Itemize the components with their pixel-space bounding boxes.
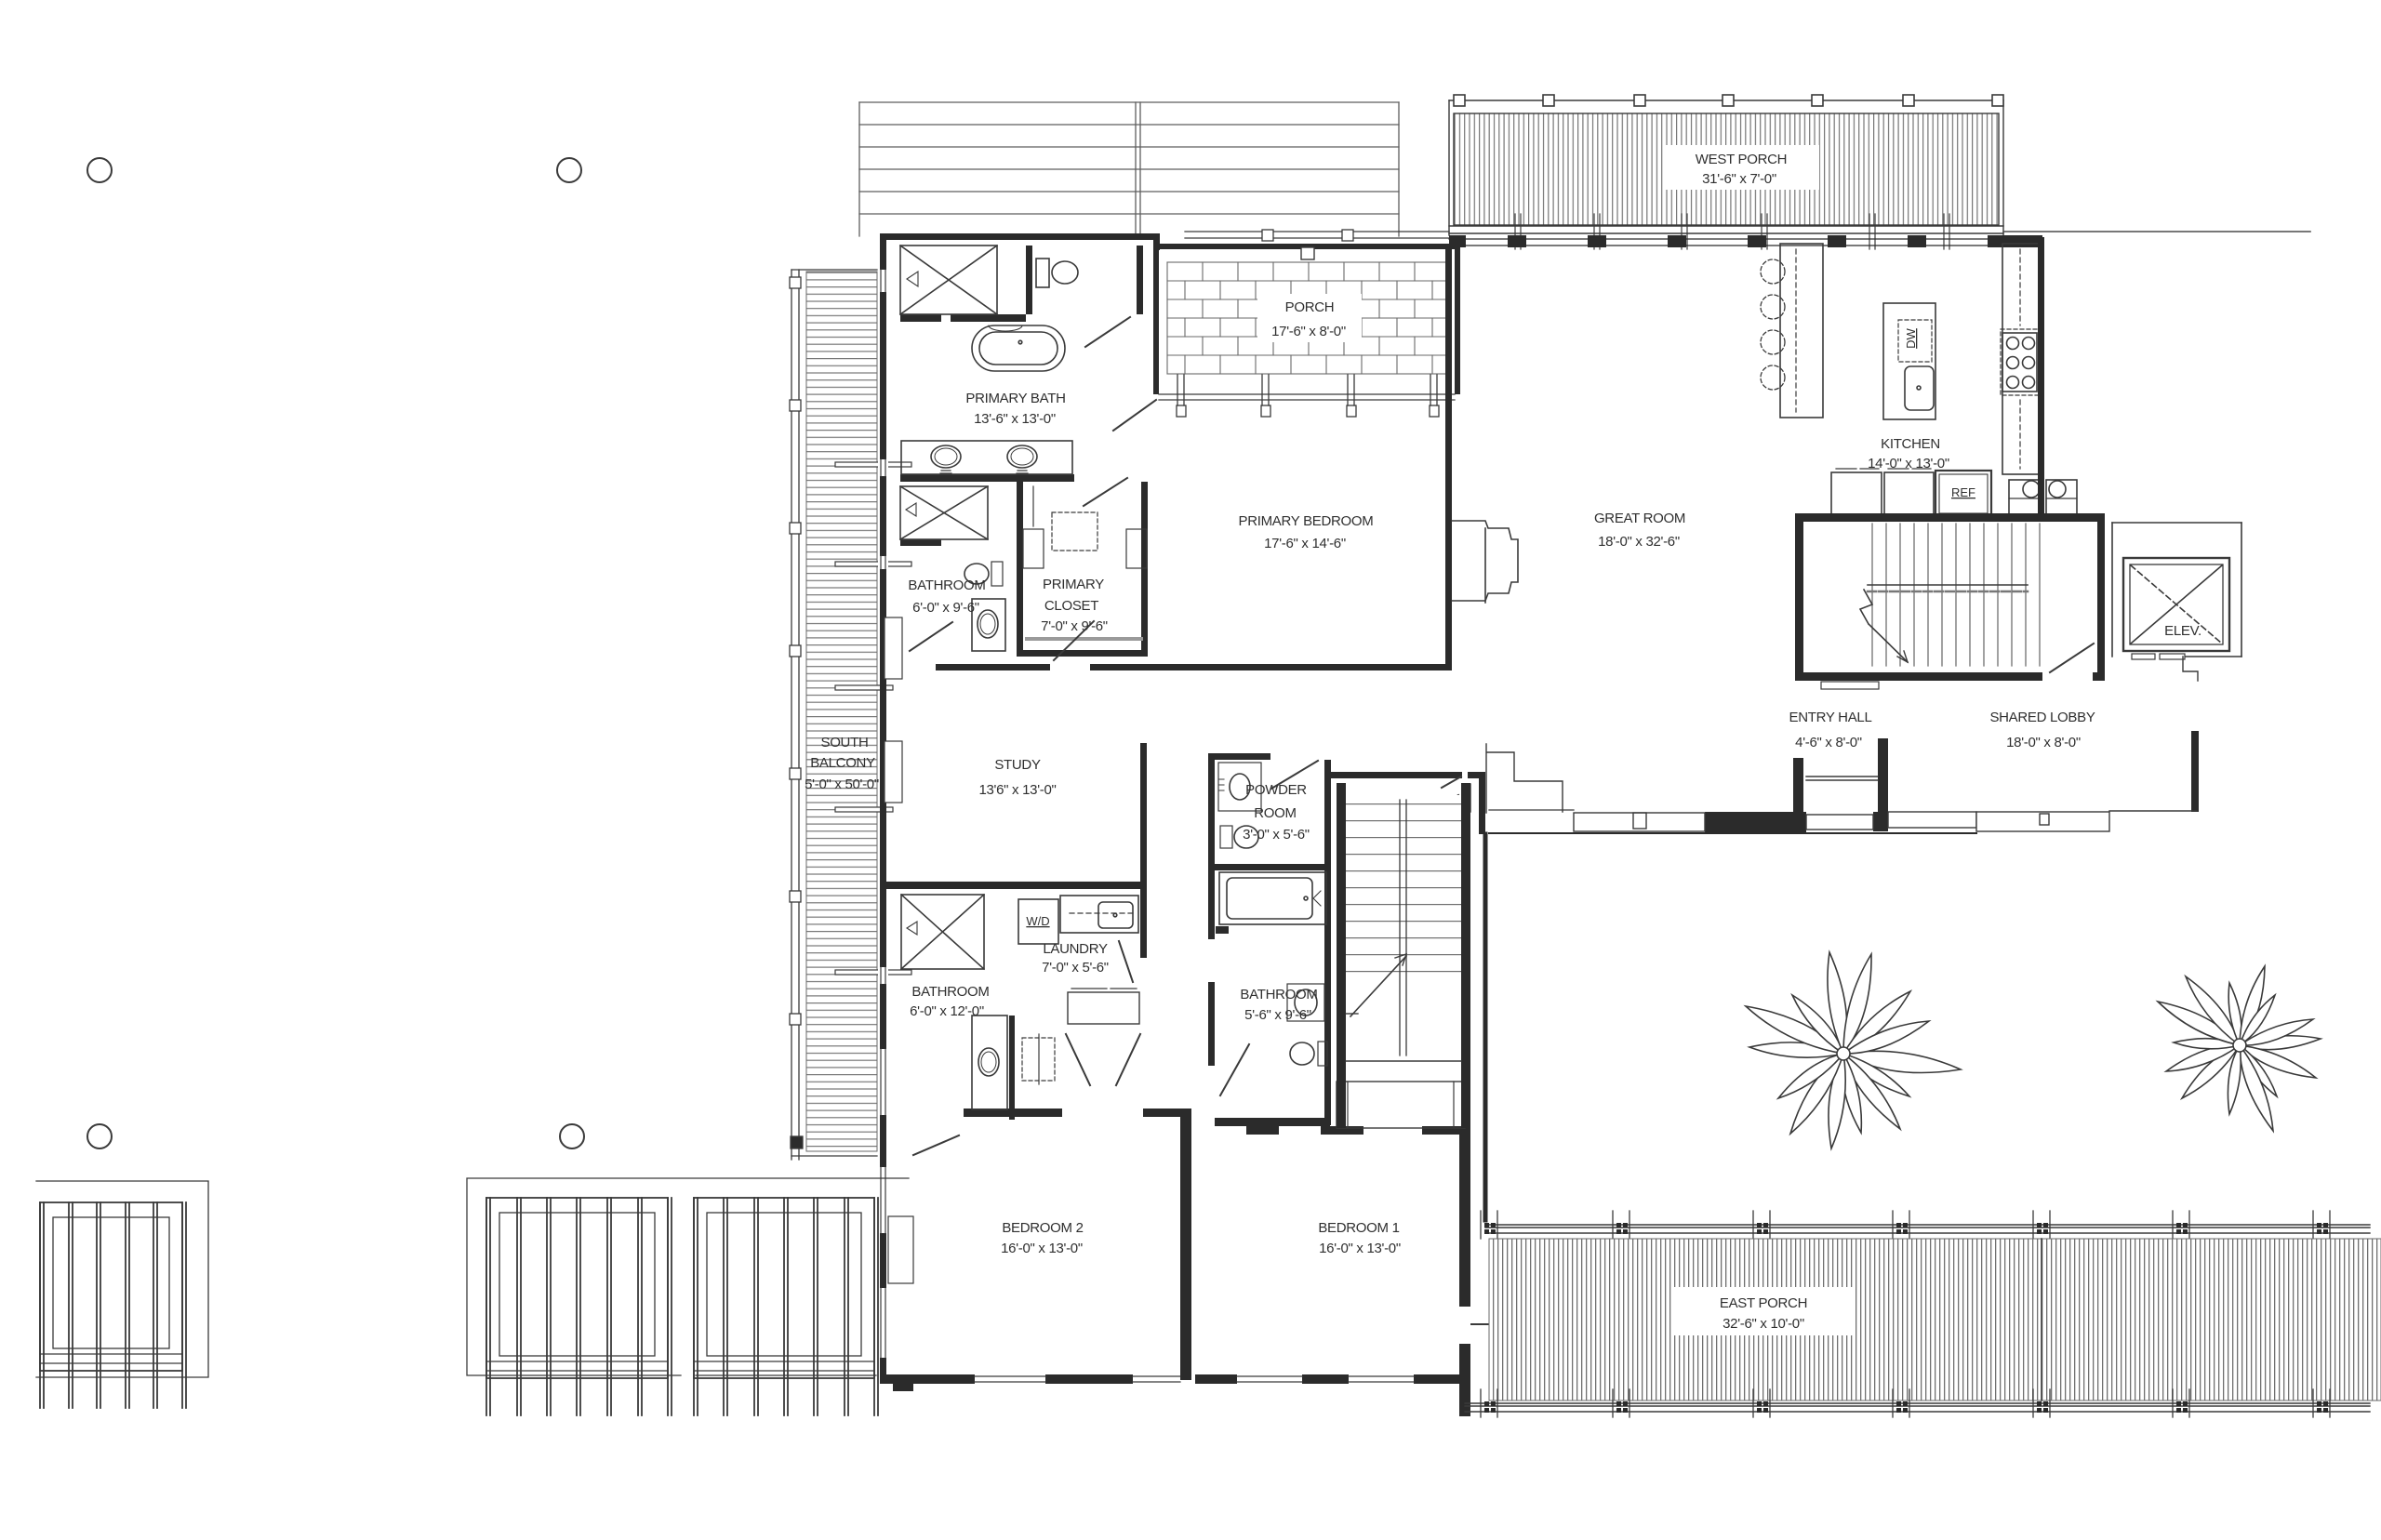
svg-text:CLOSET: CLOSET (1044, 598, 1098, 614)
svg-text:POWDER: POWDER (1245, 782, 1307, 798)
svg-text:PRIMARY BATH: PRIMARY BATH (965, 391, 1065, 406)
svg-text:BATHROOM: BATHROOM (1240, 987, 1317, 1002)
svg-text:WEST PORCH: WEST PORCH (1696, 152, 1787, 167)
svg-text:18'-0" x 32'-6": 18'-0" x 32'-6" (1598, 534, 1680, 550)
svg-text:ENTRY HALL: ENTRY HALL (1789, 710, 1872, 725)
svg-text:BEDROOM 1: BEDROOM 1 (1318, 1220, 1399, 1236)
svg-text:31'-6" x 7'-0": 31'-6" x 7'-0" (1702, 171, 1776, 187)
svg-text:16'-0" x 13'-0": 16'-0" x 13'-0" (1001, 1241, 1083, 1256)
svg-text:4'-6" x 8'-0": 4'-6" x 8'-0" (1795, 735, 1862, 750)
svg-text:ELEV.: ELEV. (2164, 623, 2201, 639)
svg-text:REF: REF (1951, 485, 1975, 499)
svg-text:5'-6" x 9'-6": 5'-6" x 9'-6" (1244, 1007, 1311, 1023)
svg-text:STUDY: STUDY (994, 757, 1041, 773)
svg-text:17'-6" x 14'-6": 17'-6" x 14'-6" (1264, 536, 1346, 551)
svg-text:16'-0" x 13'-0": 16'-0" x 13'-0" (1319, 1241, 1401, 1256)
svg-text:DW: DW (1904, 327, 1918, 348)
svg-text:BALCONY: BALCONY (810, 755, 875, 771)
svg-text:BATHROOM: BATHROOM (911, 984, 989, 1000)
svg-text:3'-0" x 5'-6": 3'-0" x 5'-6" (1243, 827, 1310, 843)
svg-text:PRIMARY BEDROOM: PRIMARY BEDROOM (1239, 513, 1374, 529)
svg-text:6'-0" x 12'-0": 6'-0" x 12'-0" (910, 1003, 984, 1019)
svg-text:18'-0" x 8'-0": 18'-0" x 8'-0" (2006, 735, 2081, 750)
svg-text:5'-0" x 50'-0": 5'-0" x 50'-0" (805, 777, 879, 792)
svg-text:17'-6" x 8'-0": 17'-6" x 8'-0" (1271, 324, 1346, 339)
svg-text:KITCHEN: KITCHEN (1881, 436, 1940, 452)
svg-text:BEDROOM 2: BEDROOM 2 (1002, 1220, 1083, 1236)
svg-text:LAUNDRY: LAUNDRY (1043, 941, 1108, 957)
svg-text:13'6" x 13'-0": 13'6" x 13'-0" (978, 782, 1056, 798)
svg-text:6'-0" x 9'-6": 6'-0" x 9'-6" (912, 600, 979, 616)
svg-text:7'-0" x 5'-6": 7'-0" x 5'-6" (1042, 960, 1109, 976)
svg-text:BATHROOM: BATHROOM (908, 577, 985, 593)
svg-text:32'-6" x 10'-0": 32'-6" x 10'-0" (1723, 1316, 1804, 1332)
svg-text:GREAT ROOM: GREAT ROOM (1594, 511, 1685, 526)
svg-text:PORCH: PORCH (1285, 299, 1335, 315)
svg-text:SHARED LOBBY: SHARED LOBBY (1989, 710, 2095, 725)
svg-text:W/D: W/D (1026, 914, 1049, 928)
svg-text:PRIMARY: PRIMARY (1043, 577, 1104, 592)
svg-text:14'-0" x 13'-0": 14'-0" x 13'-0" (1868, 456, 1949, 471)
svg-text:ROOM: ROOM (1254, 805, 1296, 821)
svg-text:7'-0" x 9'-6": 7'-0" x 9'-6" (1041, 618, 1108, 634)
svg-text:SOUTH: SOUTH (820, 735, 868, 750)
svg-text:EAST PORCH: EAST PORCH (1720, 1295, 1807, 1311)
svg-text:13'-6" x 13'-0": 13'-6" x 13'-0" (974, 411, 1056, 427)
